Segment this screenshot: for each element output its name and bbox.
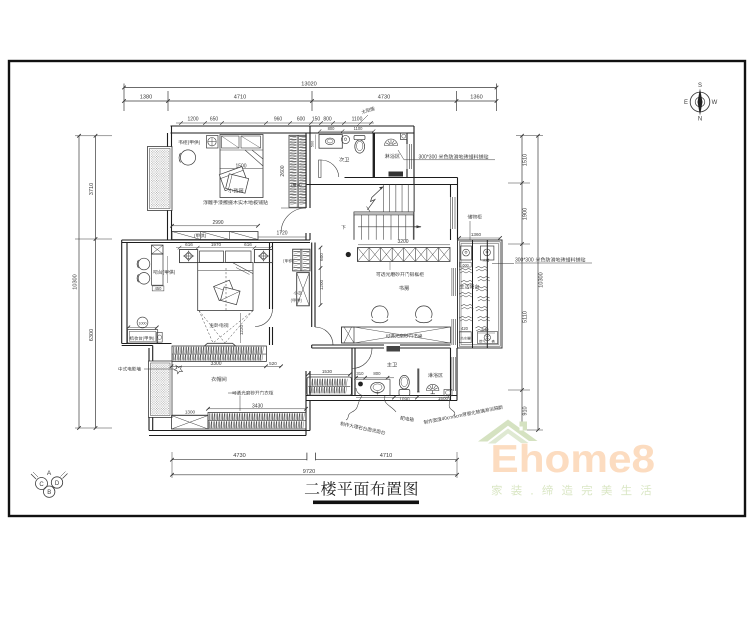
svg-text:9720: 9720: [303, 469, 315, 475]
svg-text:616: 616: [244, 242, 252, 247]
svg-text:1200: 1200: [187, 117, 198, 123]
svg-text:150: 150: [312, 117, 321, 123]
svg-text:1360: 1360: [470, 95, 482, 101]
svg-text:600: 600: [319, 253, 324, 261]
svg-text:B: B: [47, 490, 51, 496]
svg-text:450: 450: [155, 286, 163, 291]
svg-text:1300: 1300: [185, 410, 196, 415]
svg-text:3200: 3200: [397, 239, 408, 245]
svg-text:3300: 3300: [210, 361, 221, 367]
svg-text:10300: 10300: [539, 272, 545, 288]
svg-text:1900: 1900: [523, 208, 529, 220]
svg-text:910: 910: [523, 406, 529, 415]
svg-text:1530: 1530: [322, 369, 333, 374]
svg-text:650: 650: [210, 117, 219, 123]
svg-text:500: 500: [310, 140, 315, 147]
svg-text:5110: 5110: [523, 311, 529, 323]
svg-text:600: 600: [297, 117, 306, 123]
svg-text:616: 616: [185, 242, 193, 247]
svg-text:1970: 1970: [211, 242, 222, 247]
svg-text:E: E: [684, 100, 688, 106]
svg-text:2990: 2990: [212, 220, 223, 226]
svg-text:1510: 1510: [523, 154, 529, 166]
svg-text:6300: 6300: [89, 329, 95, 341]
svg-text:1200: 1200: [319, 279, 324, 290]
svg-text:W: W: [712, 100, 718, 106]
svg-text:S: S: [698, 83, 702, 89]
svg-text:4730: 4730: [378, 95, 390, 101]
svg-text:960: 960: [274, 117, 283, 123]
svg-text:420: 420: [461, 326, 469, 331]
svg-text:1500: 1500: [438, 396, 449, 401]
svg-text:Ehome8: Ehome8: [491, 438, 656, 481]
svg-text:4710: 4710: [380, 453, 392, 459]
svg-text:300*300: 300*300: [515, 258, 534, 264]
svg-text:1090: 1090: [399, 397, 410, 402]
svg-text:1220: 1220: [239, 324, 244, 335]
svg-text:800: 800: [323, 117, 332, 123]
svg-text:4710: 4710: [234, 95, 246, 101]
svg-text:13020: 13020: [301, 82, 317, 88]
svg-text:1380: 1380: [140, 95, 152, 101]
svg-text:800: 800: [373, 371, 381, 376]
svg-text:600: 600: [463, 263, 469, 267]
svg-text:1100: 1100: [352, 117, 363, 123]
svg-text:310: 310: [356, 371, 364, 376]
svg-text:540: 540: [482, 327, 490, 332]
svg-text:10300: 10300: [73, 274, 79, 290]
svg-text:D: D: [55, 481, 60, 487]
svg-text:A: A: [47, 470, 52, 477]
svg-text:C: C: [39, 482, 44, 488]
svg-text:520: 520: [269, 361, 277, 366]
svg-text:3430: 3430: [252, 403, 263, 409]
svg-text:4730: 4730: [233, 453, 245, 459]
svg-text:1100: 1100: [354, 126, 364, 131]
svg-text:3710: 3710: [89, 183, 95, 195]
svg-text:2600: 2600: [280, 165, 286, 176]
svg-text:800: 800: [328, 126, 336, 131]
svg-text:1720: 1720: [276, 231, 287, 237]
svg-text:N: N: [698, 117, 702, 123]
svg-text:1360: 1360: [471, 232, 482, 237]
svg-text:1000: 1000: [139, 321, 147, 325]
